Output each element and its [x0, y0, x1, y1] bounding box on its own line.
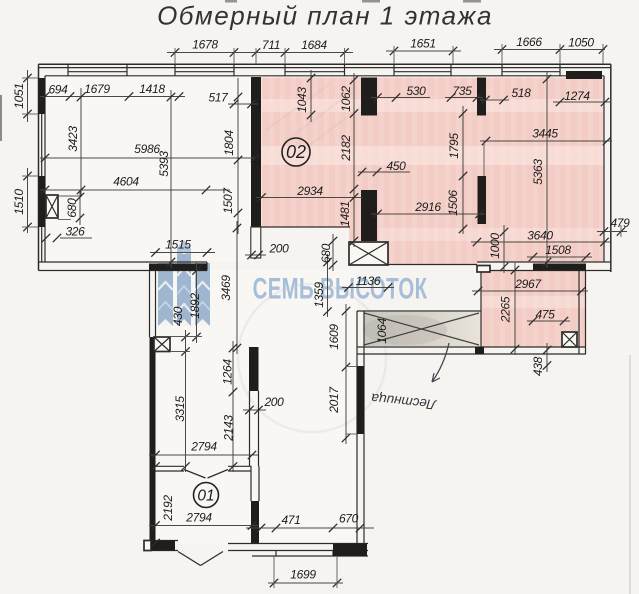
svg-text:670: 670 [339, 512, 359, 526]
svg-text:479: 479 [610, 216, 630, 230]
svg-text:1609: 1609 [327, 324, 341, 350]
svg-text:438: 438 [531, 356, 545, 376]
svg-text:1418: 1418 [139, 82, 165, 96]
svg-text:3469: 3469 [219, 275, 233, 301]
svg-text:Обмерный план 1 этажа: Обмерный план 1 этажа [157, 1, 493, 31]
svg-text:200: 200 [263, 395, 284, 409]
svg-text:5393: 5393 [157, 151, 171, 177]
svg-text:200: 200 [268, 242, 289, 256]
svg-text:1651: 1651 [410, 37, 436, 51]
svg-text:530: 530 [406, 84, 426, 98]
svg-text:1064: 1064 [375, 318, 389, 344]
svg-text:475: 475 [535, 308, 555, 322]
svg-text:1678: 1678 [192, 38, 218, 52]
svg-text:1506: 1506 [446, 190, 460, 216]
svg-text:1699: 1699 [290, 568, 316, 582]
svg-text:735: 735 [452, 84, 472, 98]
svg-text:2182: 2182 [339, 135, 353, 162]
svg-text:2794: 2794 [185, 511, 212, 525]
svg-text:711: 711 [262, 38, 280, 52]
svg-text:2934: 2934 [296, 184, 323, 198]
svg-text:1051: 1051 [12, 83, 26, 109]
svg-text:1795: 1795 [447, 133, 461, 159]
svg-text:1510: 1510 [12, 189, 26, 215]
svg-text:1679: 1679 [84, 82, 110, 96]
svg-text:680: 680 [65, 198, 79, 218]
svg-text:01: 01 [197, 488, 214, 505]
svg-text:5363: 5363 [531, 159, 545, 185]
svg-text:326: 326 [65, 225, 85, 239]
svg-text:3423: 3423 [66, 126, 80, 152]
svg-text:517: 517 [208, 91, 229, 105]
svg-text:1062: 1062 [339, 86, 353, 112]
svg-text:680: 680 [319, 243, 333, 263]
svg-text:1515: 1515 [165, 238, 191, 252]
svg-text:3640: 3640 [527, 229, 553, 243]
svg-text:2967: 2967 [514, 277, 542, 291]
svg-text:1684: 1684 [301, 38, 327, 52]
svg-text:2192: 2192 [161, 495, 175, 522]
svg-text:1359: 1359 [312, 282, 326, 308]
svg-text:2017: 2017 [327, 386, 341, 414]
svg-text:02: 02 [286, 142, 306, 162]
svg-text:430: 430 [171, 306, 185, 326]
svg-text:3445: 3445 [532, 127, 558, 141]
svg-text:1043: 1043 [295, 87, 309, 113]
svg-text:1050: 1050 [568, 36, 594, 50]
svg-text:471: 471 [281, 513, 300, 527]
svg-text:1274: 1274 [564, 89, 590, 103]
svg-text:1892: 1892 [188, 293, 202, 319]
svg-text:2916: 2916 [414, 200, 441, 214]
svg-text:1507: 1507 [221, 187, 235, 214]
svg-text:2143: 2143 [222, 415, 236, 442]
svg-text:4604: 4604 [113, 175, 139, 189]
svg-text:2265: 2265 [499, 296, 513, 323]
svg-text:1264: 1264 [221, 359, 235, 385]
svg-text:1666: 1666 [516, 35, 542, 49]
svg-text:1804: 1804 [222, 130, 236, 156]
svg-text:518: 518 [511, 86, 531, 100]
svg-text:1000: 1000 [488, 233, 502, 259]
svg-text:3315: 3315 [173, 396, 187, 422]
svg-text:1136: 1136 [356, 274, 381, 288]
svg-text:1508: 1508 [545, 243, 571, 257]
svg-text:694: 694 [48, 83, 68, 97]
svg-text:1481: 1481 [338, 201, 352, 227]
svg-text:2794: 2794 [190, 440, 217, 454]
svg-text:450: 450 [386, 159, 406, 173]
